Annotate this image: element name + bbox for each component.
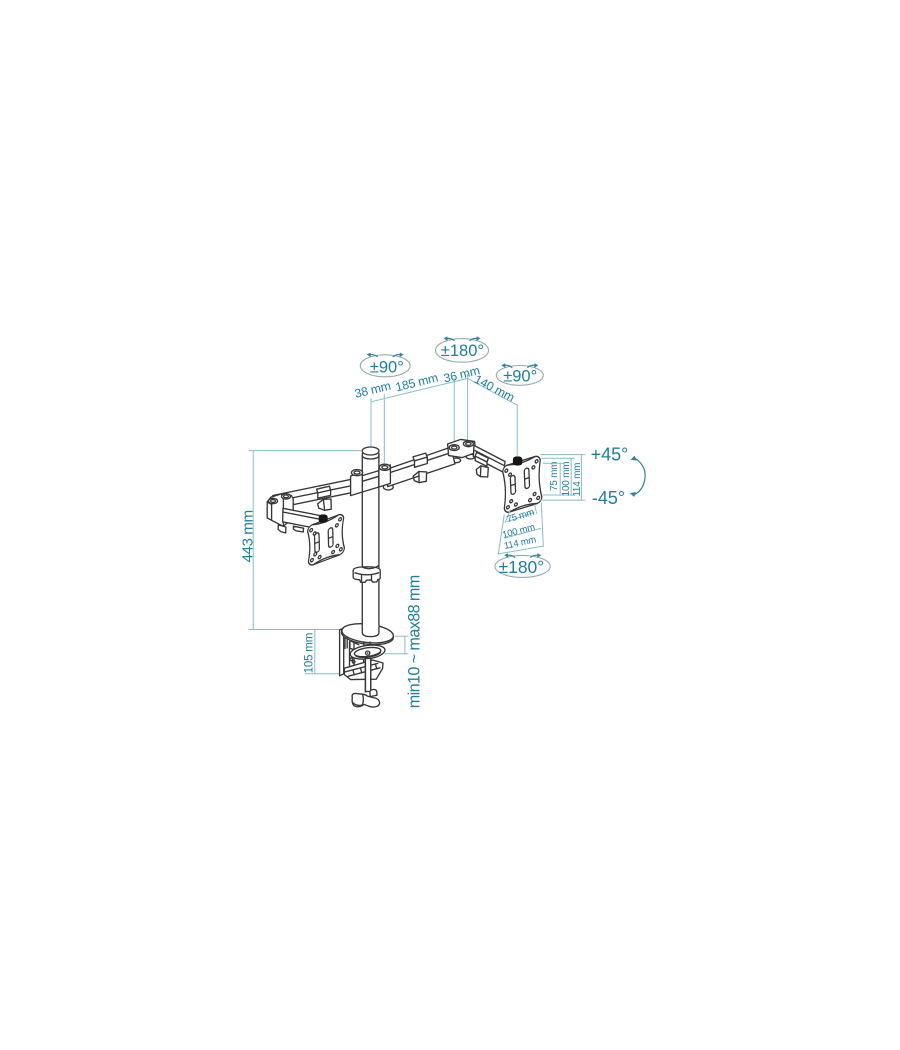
svg-text:+45°: +45° [591, 445, 629, 465]
svg-text:±90°: ±90° [503, 367, 537, 385]
svg-text:-45°: -45° [592, 488, 625, 508]
svg-text:443 mm: 443 mm [240, 510, 257, 562]
svg-text:105 mm: 105 mm [303, 633, 315, 673]
svg-text:±180°: ±180° [441, 342, 484, 360]
svg-text:100 mm: 100 mm [561, 462, 572, 497]
svg-text:38 mm: 38 mm [353, 379, 392, 401]
svg-text:114 mm: 114 mm [572, 463, 583, 497]
svg-text:±180°: ±180° [498, 557, 544, 577]
svg-text:75 mm: 75 mm [549, 462, 560, 491]
svg-text:±90°: ±90° [370, 358, 404, 376]
svg-text:min10 ~ max88 mm: min10 ~ max88 mm [406, 575, 424, 708]
